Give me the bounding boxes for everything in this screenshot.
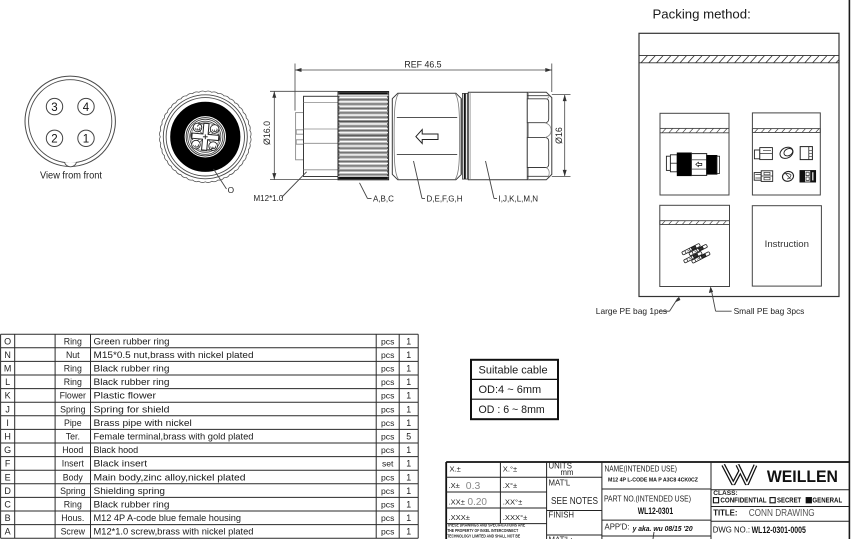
svg-text:.XXX±: .XXX± (449, 513, 470, 522)
svg-text:Flower: Flower (60, 391, 86, 401)
svg-text:.X±: .X± (449, 481, 460, 490)
svg-text:Hous.: Hous. (61, 513, 84, 523)
svg-text:Spring for shield: Spring for shield (94, 404, 170, 414)
svg-text:1: 1 (406, 336, 411, 346)
svg-text:y aka. wu 08/15 '20: y aka. wu 08/15 '20 (632, 524, 694, 533)
svg-text:1: 1 (406, 459, 411, 469)
svg-text:Ter.: Ter. (66, 432, 80, 442)
svg-text:X.°±: X.°± (503, 465, 517, 474)
svg-text:CLASS:: CLASS: (713, 490, 738, 497)
svg-text:Ring: Ring (64, 336, 82, 346)
svg-text:A: A (5, 527, 11, 537)
svg-text:Suitable cable: Suitable cable (479, 365, 548, 377)
svg-text:pcs: pcs (381, 500, 394, 510)
svg-text:pcs: pcs (381, 486, 394, 496)
svg-text:set: set (382, 459, 394, 469)
svg-text:.XXX°±: .XXX°± (503, 513, 528, 522)
svg-text:pcs: pcs (381, 364, 394, 374)
svg-text:THE PROPERTY OF INXEL INTERCON: THE PROPERTY OF INXEL INTERCONNECT (447, 528, 518, 533)
svg-text:0.20: 0.20 (468, 497, 488, 508)
svg-text:MAT'L: MAT'L (549, 478, 571, 487)
svg-text:N: N (4, 350, 11, 360)
svg-text:I,J,K,L,M,N: I,J,K,L,M,N (499, 194, 539, 203)
svg-text:NAME(INTENDED USE): NAME(INTENDED USE) (605, 464, 678, 473)
svg-text:Screw: Screw (61, 527, 86, 537)
svg-text:X.±: X.± (450, 465, 461, 474)
svg-text:MAT'L:: MAT'L: (549, 536, 573, 540)
svg-text:pcs: pcs (381, 513, 394, 523)
svg-text:pcs: pcs (381, 472, 394, 482)
svg-text:.XX±: .XX± (449, 497, 465, 506)
svg-text:5: 5 (406, 432, 411, 442)
svg-text:Green rubber ring: Green rubber ring (94, 336, 170, 346)
svg-text:REF 46.5: REF 46.5 (404, 59, 441, 69)
svg-text:L: L (5, 377, 10, 387)
svg-text:C: C (4, 500, 11, 510)
svg-text:1: 1 (406, 486, 411, 496)
svg-text:4: 4 (83, 102, 90, 114)
svg-text:OD : 6 ~ 8mm: OD : 6 ~ 8mm (479, 404, 545, 416)
svg-text:Black rubber ring: Black rubber ring (94, 377, 170, 387)
svg-text:1: 1 (406, 350, 411, 360)
svg-text:3: 3 (51, 102, 57, 114)
svg-text:G: G (4, 445, 11, 455)
svg-text:WL12-0301: WL12-0301 (638, 506, 673, 516)
svg-text:H: H (4, 432, 11, 442)
svg-text:1: 1 (406, 377, 411, 387)
svg-text:M12*1.0 screw,brass with nicke: M12*1.0 screw,brass with nickel plated (94, 527, 254, 537)
svg-text:THESE DRAWINGS AND SPECIFICATI: THESE DRAWINGS AND SPECIFICATIONS ARE (447, 522, 525, 527)
svg-text:DWG NO.:: DWG NO.: (713, 526, 750, 535)
svg-text:pcs: pcs (381, 391, 394, 401)
svg-text:SEE NOTES: SEE NOTES (551, 496, 598, 507)
svg-text:1: 1 (406, 527, 411, 537)
svg-text:1: 1 (406, 472, 411, 482)
svg-text:Spring: Spring (60, 486, 86, 496)
svg-text:CONN DRAWING: CONN DRAWING (749, 508, 815, 519)
svg-text:Body: Body (63, 472, 84, 482)
svg-text:SECRET: SECRET (777, 497, 802, 504)
svg-text:1: 1 (83, 134, 89, 146)
svg-text:M15*0.5 nut,brass with nickel: M15*0.5 nut,brass with nickel plated (94, 350, 254, 360)
svg-text:F: F (5, 459, 11, 469)
svg-text:Hood: Hood (62, 445, 83, 455)
svg-text:APP'D:: APP'D: (605, 522, 630, 531)
svg-text:Black rubber ring: Black rubber ring (94, 364, 170, 374)
svg-text:M12 4P A-code blue female hous: M12 4P A-code blue female housing (94, 513, 242, 523)
svg-text:pcs: pcs (381, 336, 394, 346)
svg-text:GENERAL: GENERAL (812, 497, 842, 504)
svg-text:E: E (5, 472, 11, 482)
svg-text:.X°±: .X°± (503, 481, 517, 490)
svg-text:Pipe: Pipe (64, 418, 82, 428)
svg-text:M12 4P L-CODE MA P A3C8 4CK0CZ: M12 4P L-CODE MA P A3C8 4CK0CZ (608, 477, 698, 483)
svg-text:Packing method:: Packing method: (653, 7, 751, 22)
svg-text:Shielding spring: Shielding spring (94, 486, 166, 496)
svg-text:A,B,C: A,B,C (373, 194, 394, 203)
svg-text:Plastic flower: Plastic flower (94, 391, 157, 401)
svg-text:O: O (228, 185, 235, 195)
svg-text:M12*1.0: M12*1.0 (254, 194, 284, 203)
svg-text:Ring: Ring (64, 377, 82, 387)
svg-text:pcs: pcs (381, 404, 394, 414)
svg-text:I: I (6, 418, 9, 428)
svg-text:FINISH: FINISH (549, 511, 575, 520)
svg-text:Ø16.0: Ø16.0 (262, 121, 272, 145)
svg-text:pcs: pcs (381, 445, 394, 455)
svg-text:0.3: 0.3 (466, 481, 481, 492)
svg-text:K: K (5, 391, 11, 401)
svg-text:pcs: pcs (381, 350, 394, 360)
svg-text:Nut: Nut (66, 350, 80, 360)
svg-text:1: 1 (406, 500, 411, 510)
svg-text:Brass pipe with nickel: Brass pipe with nickel (94, 418, 192, 428)
svg-text:D: D (4, 486, 11, 496)
svg-text:1: 1 (406, 391, 411, 401)
svg-text:OD:4 ~ 6mm: OD:4 ~ 6mm (479, 384, 542, 396)
svg-text:pcs: pcs (381, 432, 394, 442)
svg-text:2: 2 (51, 134, 57, 146)
svg-text:Black hood: Black hood (94, 445, 139, 455)
svg-text:1: 1 (406, 404, 411, 414)
svg-text:View from front: View from front (40, 171, 102, 182)
svg-text:mm: mm (561, 468, 574, 477)
svg-text:Large PE bag 1pcs: Large PE bag 1pcs (596, 306, 667, 316)
svg-text:Black insert: Black insert (94, 459, 148, 469)
svg-text:Female terminal,brass with gol: Female terminal,brass with gold plated (94, 432, 254, 442)
svg-text:M: M (4, 364, 12, 374)
svg-text:1: 1 (406, 364, 411, 374)
svg-text:O: O (4, 336, 11, 346)
svg-text:1: 1 (406, 513, 411, 523)
svg-text:Instruction: Instruction (765, 239, 809, 250)
svg-text:Small PE bag 3pcs: Small PE bag 3pcs (734, 306, 805, 316)
svg-text:Main body,zinc alloy,nickel pl: Main body,zinc alloy,nickel plated (94, 472, 246, 482)
svg-text:D,E,F,G,H: D,E,F,G,H (427, 194, 463, 203)
svg-text:.XX°±: .XX°± (503, 497, 522, 506)
svg-text:pcs: pcs (381, 377, 394, 387)
svg-text:J: J (5, 404, 10, 414)
svg-text:Ring: Ring (64, 500, 82, 510)
svg-text:pcs: pcs (381, 418, 394, 428)
svg-text:CONFIDENTIAL: CONFIDENTIAL (720, 497, 767, 504)
svg-text:PART NO.(INTENDED USE): PART NO.(INTENDED USE) (604, 495, 691, 504)
svg-text:TITLE:: TITLE: (713, 509, 737, 518)
svg-text:Black rubber ring: Black rubber ring (94, 500, 170, 510)
svg-text:TECHNOLOGY LIMITED AND SHALL N: TECHNOLOGY LIMITED AND SHALL NOT BE (447, 534, 520, 539)
svg-text:B: B (5, 513, 11, 523)
svg-text:1: 1 (406, 445, 411, 455)
svg-text:Ø16: Ø16 (554, 127, 564, 144)
svg-text:Insert: Insert (62, 459, 85, 469)
svg-text:WEILLEN: WEILLEN (767, 467, 838, 486)
svg-text:1: 1 (406, 418, 411, 428)
svg-text:Spring: Spring (60, 404, 86, 414)
svg-text:Ring: Ring (64, 364, 82, 374)
svg-text:WL12-0301-0005: WL12-0301-0005 (752, 525, 806, 535)
svg-text:pcs: pcs (381, 527, 394, 537)
